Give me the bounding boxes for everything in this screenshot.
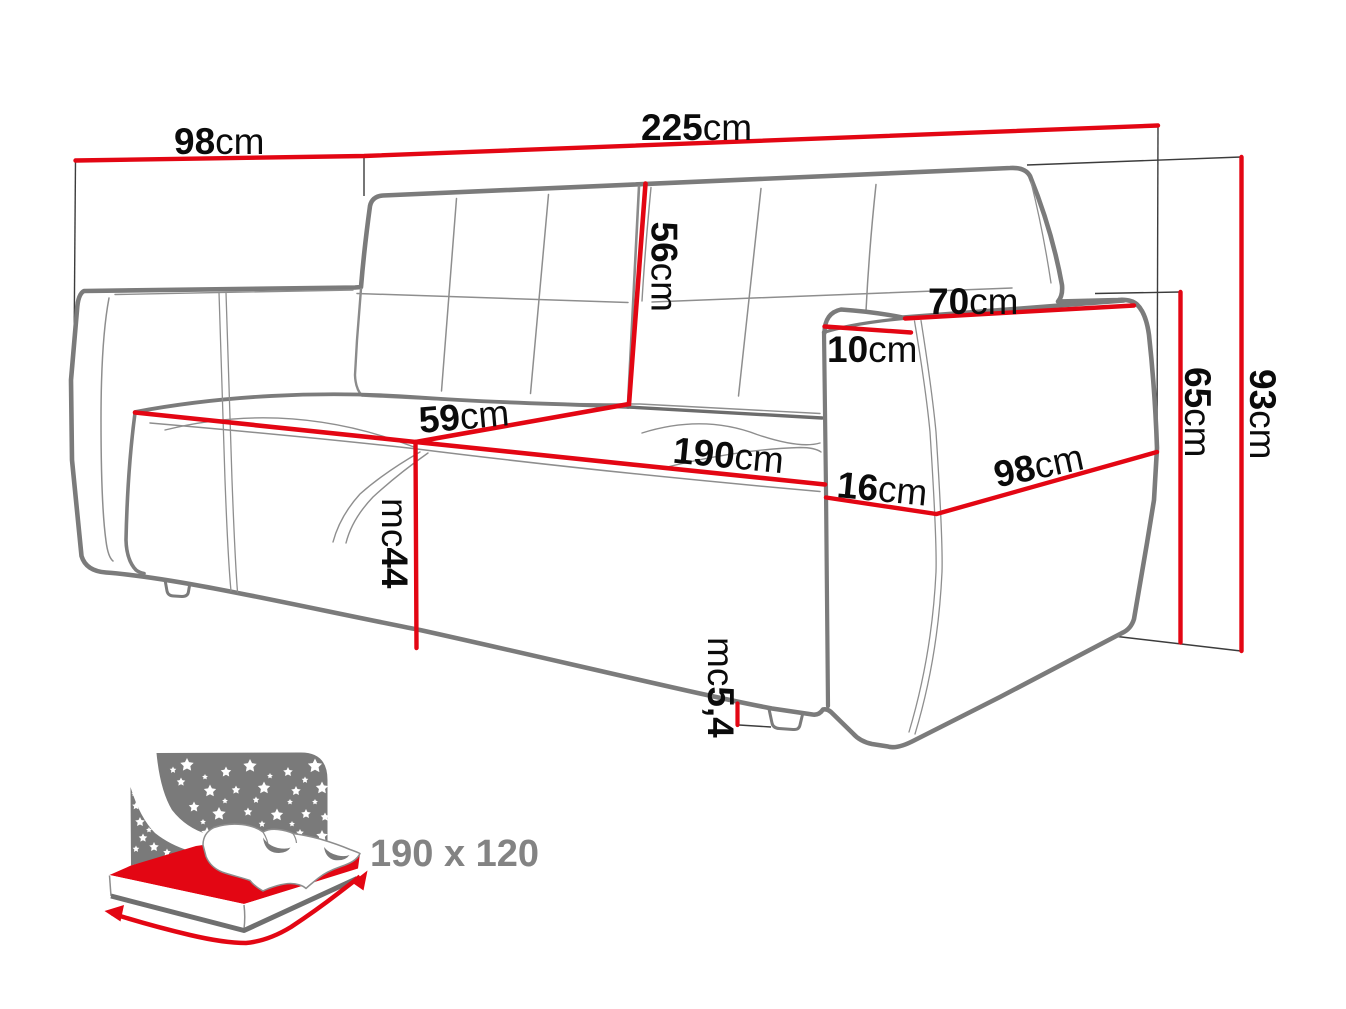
svg-text:mc5,4: mc5,4 [700, 637, 741, 738]
svg-text:70cm: 70cm [928, 281, 1018, 322]
svg-text:10cm: 10cm [827, 329, 917, 370]
svg-text:65cm: 65cm [1177, 367, 1218, 457]
svg-text:190 x 120: 190 x 120 [370, 833, 539, 875]
svg-text:16cm: 16cm [835, 464, 929, 513]
svg-text:56cm: 56cm [644, 222, 685, 312]
svg-text:225cm: 225cm [641, 107, 752, 148]
svg-text:mc44: mc44 [374, 498, 415, 589]
svg-text:59cm: 59cm [417, 392, 511, 441]
svg-text:98cm: 98cm [174, 121, 264, 162]
svg-text:93cm: 93cm [1242, 369, 1283, 459]
